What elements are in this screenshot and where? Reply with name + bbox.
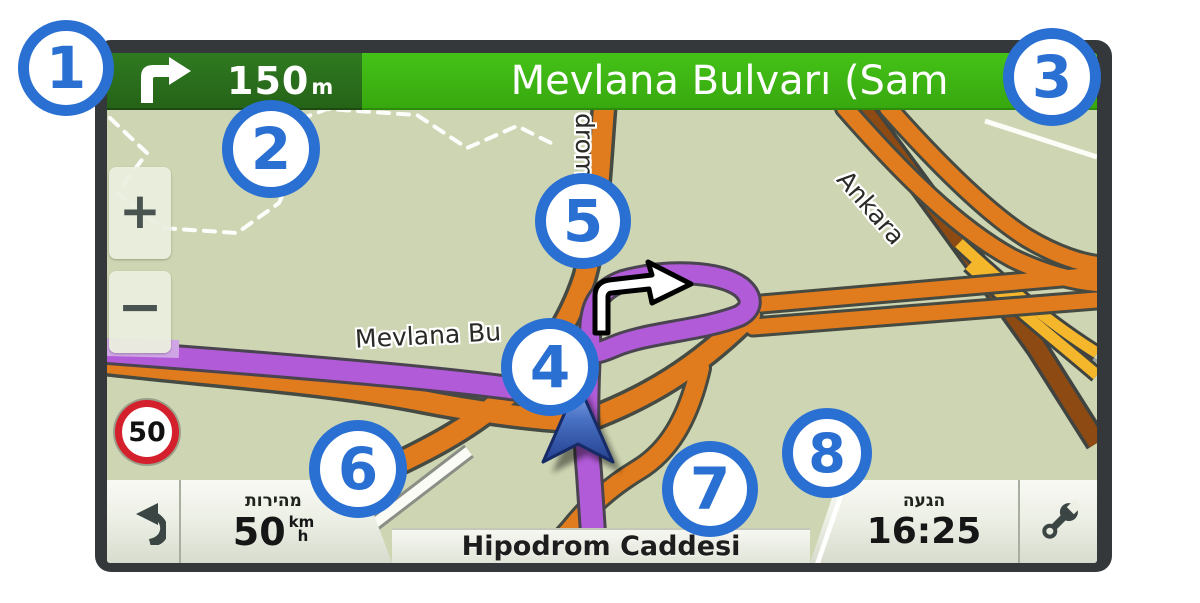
tools-button[interactable] <box>1018 480 1097 563</box>
speed-field-label: מהירות <box>245 493 302 510</box>
wrench-icon <box>1036 499 1082 545</box>
speed-limit-value: 50 <box>128 417 166 448</box>
speed-limit-sign: 50 <box>115 400 179 464</box>
arrival-field-label: הגעה <box>903 493 945 510</box>
speed-unit-h: h <box>289 529 315 543</box>
callout-3: 3 <box>1003 28 1101 126</box>
speed-unit: km h <box>289 515 315 544</box>
figure: Mevlana Bu drom Ankara 50 + − 150 m <box>0 0 1200 603</box>
callout-1: 1 <box>18 20 114 116</box>
callout-7: 7 <box>662 441 758 537</box>
current-road-bar[interactable]: Hipodrom Caddesi <box>392 528 810 563</box>
speed-readout: 50 km h <box>233 513 315 551</box>
distance-value: 150 <box>227 59 309 103</box>
back-icon <box>120 499 166 545</box>
callout-6: 6 <box>309 420 407 518</box>
back-button[interactable] <box>107 480 181 563</box>
callout-5: 5 <box>535 173 631 269</box>
speed-value: 50 <box>233 513 286 551</box>
next-street-bar[interactable]: Mevlana Bulvarı (Sam <box>362 53 1097 110</box>
distance-unit: m <box>311 75 333 99</box>
callout-4: 4 <box>501 318 599 416</box>
zoom-in-button[interactable]: + <box>109 167 171 259</box>
callout-2: 2 <box>222 100 320 198</box>
map-street-label-vertical: drom <box>570 113 599 178</box>
zoom-out-button[interactable]: − <box>109 271 171 353</box>
next-street-name: Mevlana Bulvarı (Sam <box>511 58 949 104</box>
turn-right-icon <box>129 57 193 105</box>
next-turn-bar[interactable]: 150 m <box>107 53 362 110</box>
arrival-time-value: 16:25 <box>867 514 982 550</box>
boundary-dashed-line <box>110 109 555 233</box>
minor-road-white <box>985 121 1097 157</box>
distance-to-turn: 150 m <box>227 59 333 103</box>
callout-8: 8 <box>782 408 872 498</box>
